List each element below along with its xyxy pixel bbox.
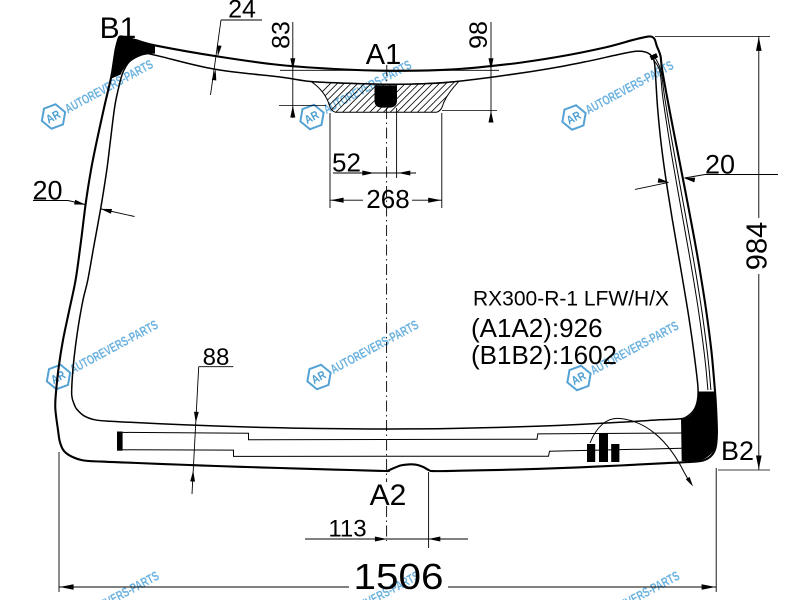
svg-text:(A1A2):926: (A1A2):926 (471, 313, 603, 343)
svg-text:1506: 1506 (354, 556, 444, 597)
svg-text:A1: A1 (366, 39, 401, 71)
svg-text:AUTOREVERS-PARTS: AUTOREVERS-PARTS (68, 568, 162, 600)
svg-text:113: 113 (328, 516, 366, 543)
svg-text:268: 268 (366, 184, 409, 214)
svg-text:20: 20 (705, 150, 735, 180)
svg-text:B2: B2 (721, 436, 754, 466)
svg-text:88: 88 (203, 344, 230, 371)
svg-text:24: 24 (228, 0, 256, 24)
svg-text:B1: B1 (100, 12, 137, 45)
svg-text:(B1B2):1602: (B1B2):1602 (471, 340, 617, 370)
svg-text:52: 52 (332, 148, 361, 178)
svg-text:A2: A2 (370, 479, 407, 512)
svg-text:20: 20 (32, 176, 62, 206)
svg-text:98: 98 (465, 21, 493, 49)
svg-text:AUTOREVERS-PARTS: AUTOREVERS-PARTS (328, 317, 422, 377)
svg-text:984: 984 (742, 222, 774, 270)
svg-text:RX300-R-1 LFW/H/X: RX300-R-1 LFW/H/X (473, 288, 669, 311)
svg-text:AUTOREVERS-PARTS: AUTOREVERS-PARTS (67, 317, 161, 377)
svg-text:AUTOREVERS-PARTS: AUTOREVERS-PARTS (589, 568, 683, 600)
svg-text:83: 83 (268, 21, 296, 49)
